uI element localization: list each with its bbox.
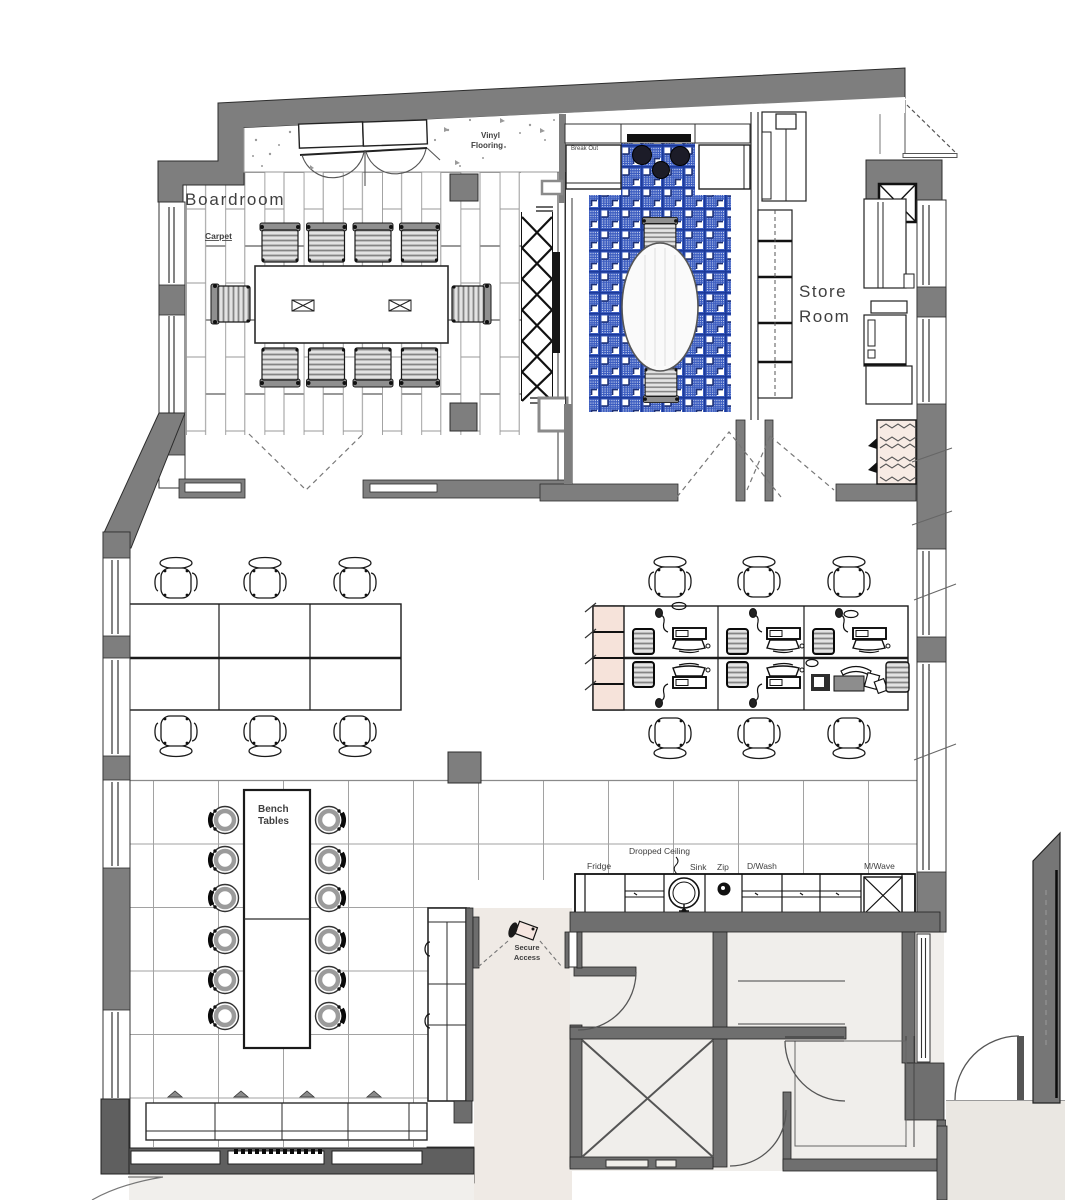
svg-text:Access: Access <box>514 953 540 962</box>
svg-text:Vinyl: Vinyl <box>481 131 500 140</box>
svg-text:Sink: Sink <box>690 862 707 872</box>
svg-text:Flooring: Flooring <box>471 141 503 150</box>
svg-text:Carpet: Carpet <box>205 231 232 241</box>
svg-text:Secure: Secure <box>514 943 539 952</box>
svg-text:Tables: Tables <box>258 816 289 827</box>
svg-text:Room: Room <box>799 307 850 326</box>
svg-text:Bench: Bench <box>258 804 289 815</box>
svg-text:D/Wash: D/Wash <box>747 861 777 871</box>
svg-text:Dropped Ceiling: Dropped Ceiling <box>629 846 690 856</box>
svg-text:Store: Store <box>799 282 847 301</box>
svg-text:M/Wave: M/Wave <box>864 861 895 871</box>
svg-text:Fridge: Fridge <box>587 861 611 871</box>
svg-text:Break Out: Break Out <box>571 146 598 152</box>
svg-text:Zip: Zip <box>717 862 729 872</box>
svg-text:Boardroom: Boardroom <box>185 190 285 209</box>
